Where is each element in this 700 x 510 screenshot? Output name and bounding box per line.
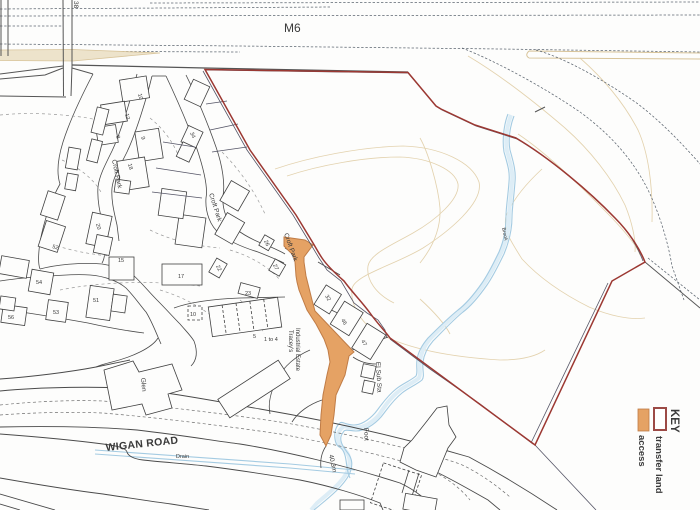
svg-text:23: 23 <box>245 291 251 297</box>
svg-text:Foot: Foot <box>362 428 370 442</box>
svg-text:Tracey's: Tracey's <box>287 330 293 352</box>
svg-text:M6: M6 <box>284 21 301 35</box>
svg-text:15: 15 <box>118 258 124 264</box>
svg-text:1 to 4: 1 to 4 <box>264 337 278 343</box>
svg-text:access: access <box>636 435 647 467</box>
svg-text:54: 54 <box>36 280 42 286</box>
svg-text:Drain: Drain <box>176 454 189 460</box>
svg-text:KEY: KEY <box>668 409 680 433</box>
svg-text:56: 56 <box>8 315 14 321</box>
svg-text:Industrial Estate: Industrial Estate <box>294 328 300 372</box>
svg-text:10: 10 <box>190 312 196 318</box>
svg-text:53: 53 <box>53 310 59 316</box>
svg-text:17: 17 <box>178 274 184 280</box>
svg-text:Glen: Glen <box>139 378 147 393</box>
svg-text:transfer land: transfer land <box>653 436 664 494</box>
svg-text:38: 38 <box>72 1 79 9</box>
svg-text:5: 5 <box>253 334 256 340</box>
svg-text:51: 51 <box>93 298 99 304</box>
